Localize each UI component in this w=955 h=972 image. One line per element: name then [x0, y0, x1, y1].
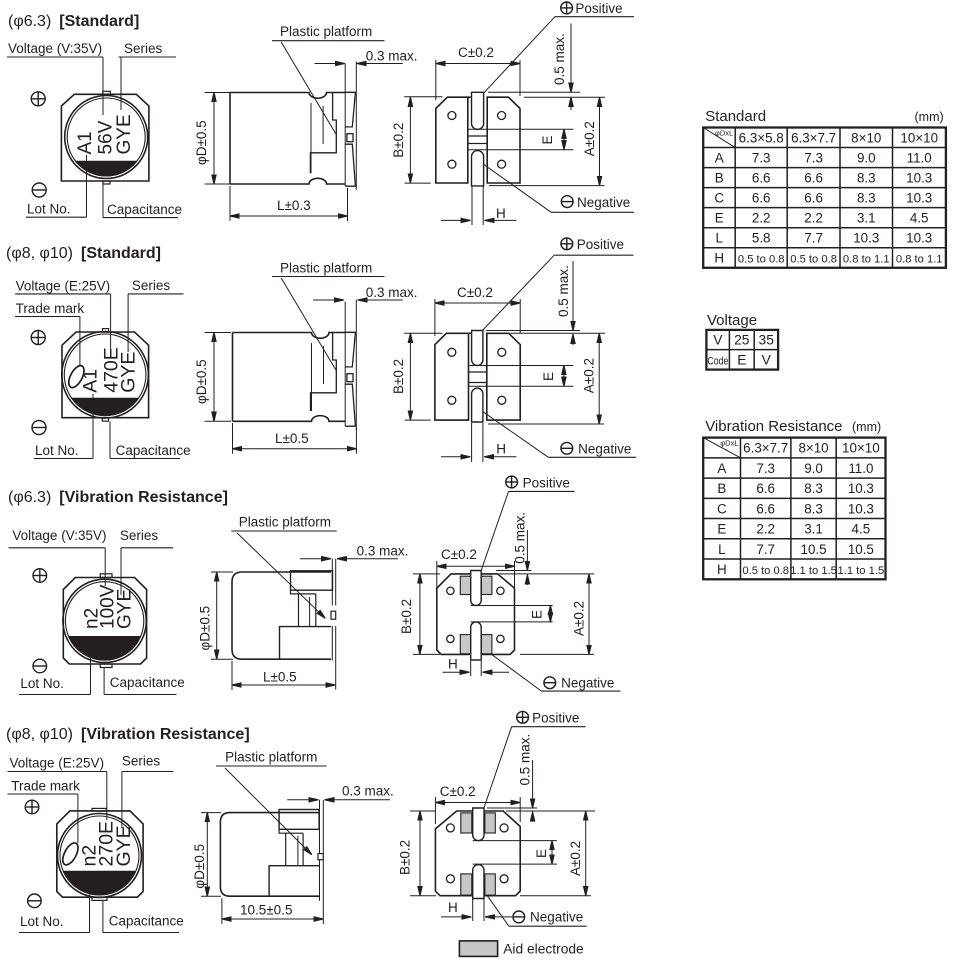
svg-text:0.5 max.: 0.5 max.: [556, 265, 571, 317]
svg-text:B±0.2: B±0.2: [399, 599, 414, 634]
svg-text:6.3×7.7: 6.3×7.7: [743, 441, 788, 456]
svg-text:L±0.3: L±0.3: [277, 198, 311, 213]
svg-text:φDxL: φDxL: [715, 129, 733, 138]
svg-text:2.2: 2.2: [804, 211, 823, 226]
svg-text:E: E: [534, 849, 549, 858]
svg-text:(mm): (mm): [915, 110, 944, 124]
svg-text:B: B: [717, 481, 726, 496]
svg-text:L: L: [718, 542, 725, 557]
svg-text:Series: Series: [120, 528, 159, 543]
svg-text:E: E: [737, 352, 746, 367]
svg-text:0.8 to 1.1: 0.8 to 1.1: [896, 254, 943, 266]
svg-text:Lot No.: Lot No.: [20, 914, 64, 929]
svg-text:0.5 max.: 0.5 max.: [513, 512, 528, 564]
svg-text:Lot No.: Lot No.: [35, 443, 79, 458]
svg-text:B±0.2: B±0.2: [391, 123, 406, 158]
svg-text:1.1 to 1.5: 1.1 to 1.5: [790, 565, 837, 577]
svg-text:H: H: [717, 562, 727, 577]
svg-text:E: E: [530, 610, 545, 619]
svg-text:Voltage (E:25V): Voltage (E:25V): [10, 756, 105, 771]
svg-text:(mm): (mm): [852, 420, 881, 434]
svg-text:A1: A1: [80, 369, 102, 393]
svg-text:25: 25: [734, 333, 750, 348]
svg-text:H: H: [496, 442, 506, 457]
svg-text:E: E: [715, 211, 724, 226]
svg-text:6.6: 6.6: [804, 191, 823, 206]
svg-text:Plastic platform: Plastic platform: [225, 750, 317, 765]
svg-text:10.5: 10.5: [801, 542, 827, 557]
svg-text:Positive: Positive: [577, 237, 624, 252]
svg-text:8.3: 8.3: [857, 191, 876, 206]
svg-text:0.5 max.: 0.5 max.: [552, 33, 567, 85]
svg-text:8.3: 8.3: [857, 171, 876, 186]
svg-text:GYE: GYE: [114, 589, 135, 629]
svg-text:10.3: 10.3: [906, 171, 932, 186]
svg-text:0.3 max.: 0.3 max.: [366, 285, 418, 300]
svg-text:2.2: 2.2: [752, 211, 771, 226]
svg-text:A±0.2: A±0.2: [568, 841, 583, 876]
svg-text:0.3 max.: 0.3 max.: [357, 544, 409, 559]
svg-text:8.3: 8.3: [804, 481, 823, 496]
svg-text:L±0.5: L±0.5: [263, 670, 297, 685]
svg-text:3.1: 3.1: [804, 522, 823, 537]
svg-text:0.5 to 0.8: 0.5 to 0.8: [738, 254, 785, 266]
svg-text:10.3: 10.3: [848, 501, 874, 516]
svg-text:Negative: Negative: [561, 676, 614, 691]
svg-text:C: C: [717, 501, 727, 516]
svg-text:Capacitance: Capacitance: [110, 675, 185, 690]
svg-text:8×10: 8×10: [851, 130, 881, 145]
svg-text:Trade mark: Trade mark: [16, 301, 85, 316]
svg-text:11.0: 11.0: [907, 150, 932, 165]
svg-text:Positive: Positive: [523, 475, 570, 490]
svg-text:Plastic platform: Plastic platform: [280, 261, 372, 276]
svg-text:φDxL: φDxL: [720, 439, 738, 448]
svg-text:7.7: 7.7: [756, 542, 775, 557]
svg-text:GYE: GYE: [118, 352, 140, 393]
svg-text:2.2: 2.2: [756, 522, 775, 537]
svg-text:Trade mark: Trade mark: [11, 779, 80, 794]
svg-text:10×10: 10×10: [842, 441, 880, 456]
svg-text:10.3: 10.3: [853, 231, 879, 246]
svg-text:(φ6.3) [Vibration Resistance]: (φ6.3) [Vibration Resistance]: [8, 489, 228, 506]
svg-text:35: 35: [759, 333, 775, 348]
svg-text:11.0: 11.0: [848, 461, 873, 476]
svg-text:C±0.2: C±0.2: [440, 784, 476, 799]
svg-text:10×10: 10×10: [900, 130, 938, 145]
svg-text:6.6: 6.6: [804, 171, 823, 186]
svg-text:6.6: 6.6: [752, 171, 771, 186]
svg-text:8.3: 8.3: [804, 501, 823, 516]
svg-text:Standard: Standard: [705, 108, 766, 125]
svg-text:B±0.2: B±0.2: [398, 840, 413, 875]
svg-text:φD±0.5: φD±0.5: [192, 844, 207, 889]
svg-text:6.3×7.7: 6.3×7.7: [791, 130, 836, 145]
svg-text:10.3: 10.3: [906, 231, 932, 246]
svg-text:10.3: 10.3: [906, 191, 932, 206]
svg-text:0.5 to 0.8: 0.5 to 0.8: [742, 565, 789, 577]
svg-text:Negative: Negative: [578, 442, 631, 457]
svg-text:A±0.2: A±0.2: [572, 601, 587, 636]
svg-text:H: H: [448, 657, 458, 672]
svg-text:A: A: [715, 150, 724, 165]
svg-text:A±0.2: A±0.2: [582, 121, 597, 156]
svg-text:6.3×5.8: 6.3×5.8: [739, 130, 784, 145]
svg-text:10.5: 10.5: [848, 542, 874, 557]
svg-text:C: C: [714, 191, 724, 206]
svg-text:C±0.2: C±0.2: [457, 285, 493, 300]
svg-text:Series: Series: [122, 754, 161, 769]
svg-text:0.5 max.: 0.5 max.: [518, 734, 533, 786]
svg-text:Voltage: Voltage: [707, 312, 757, 329]
svg-text:L: L: [715, 231, 722, 246]
svg-text:E: E: [717, 522, 726, 537]
svg-text:7.3: 7.3: [752, 150, 771, 165]
svg-text:(φ8, φ10) [Vibration Resistanc: (φ8, φ10) [Vibration Resistance]: [6, 726, 250, 743]
svg-text:Plastic platform: Plastic platform: [280, 24, 372, 39]
svg-text:Negative: Negative: [577, 195, 630, 210]
svg-text:Positive: Positive: [532, 711, 579, 726]
svg-text:H: H: [496, 206, 506, 221]
svg-text:10.5±0.5: 10.5±0.5: [240, 903, 292, 918]
svg-text:V: V: [762, 352, 772, 367]
svg-text:A±0.2: A±0.2: [582, 358, 597, 393]
svg-text:(φ8, φ10) [Standard]: (φ8, φ10) [Standard]: [6, 245, 161, 262]
svg-text:0.3 max.: 0.3 max.: [342, 784, 394, 799]
svg-text:(φ6.3) [Standard]: (φ6.3) [Standard]: [8, 13, 139, 30]
svg-text:3.1: 3.1: [857, 211, 876, 226]
svg-text:7.3: 7.3: [804, 150, 823, 165]
svg-text:φD±0.5: φD±0.5: [194, 359, 209, 404]
svg-text:Lot No.: Lot No.: [20, 676, 64, 691]
svg-text:Capacitance: Capacitance: [109, 914, 184, 929]
svg-text:6.6: 6.6: [756, 501, 775, 516]
svg-text:Voltage (V:35V): Voltage (V:35V): [8, 41, 102, 56]
svg-text:E: E: [541, 372, 556, 381]
svg-text:C±0.2: C±0.2: [441, 547, 477, 562]
svg-text:5.8: 5.8: [752, 231, 771, 246]
svg-text:6.6: 6.6: [752, 191, 771, 206]
svg-text:A1: A1: [75, 131, 96, 154]
svg-text:0.3 max.: 0.3 max.: [366, 49, 418, 64]
svg-text:7.3: 7.3: [756, 461, 775, 476]
svg-text:0.5 to 0.8: 0.5 to 0.8: [790, 254, 837, 266]
svg-text:4.5: 4.5: [852, 522, 871, 537]
svg-text:7.7: 7.7: [804, 231, 823, 246]
svg-text:9.0: 9.0: [857, 150, 876, 165]
svg-text:Series: Series: [132, 278, 171, 293]
svg-text:GYE: GYE: [113, 825, 135, 866]
svg-text:V: V: [713, 333, 723, 348]
svg-text:4.5: 4.5: [910, 211, 929, 226]
svg-text:8×10: 8×10: [798, 441, 828, 456]
svg-text:Positive: Positive: [575, 1, 622, 16]
svg-text:6.6: 6.6: [756, 481, 775, 496]
svg-text:H: H: [448, 900, 458, 915]
svg-text:Capacitance: Capacitance: [116, 443, 191, 458]
svg-text:B: B: [715, 171, 724, 186]
svg-text:GYE: GYE: [114, 114, 135, 154]
svg-text:10.3: 10.3: [848, 481, 874, 496]
svg-text:Code: Code: [707, 355, 728, 367]
svg-text:B±0.2: B±0.2: [391, 359, 406, 394]
svg-text:L±0.5: L±0.5: [275, 431, 309, 446]
svg-text:0.8 to 1.1: 0.8 to 1.1: [843, 254, 890, 266]
svg-text:φD±0.5: φD±0.5: [198, 606, 213, 651]
svg-text:Vibration Resistance: Vibration Resistance: [705, 418, 842, 435]
svg-text:1.1 to 1.5: 1.1 to 1.5: [838, 565, 885, 577]
svg-text:Capacitance: Capacitance: [107, 202, 182, 217]
svg-text:A: A: [717, 461, 726, 476]
svg-text:Voltage (E:25V): Voltage (E:25V): [16, 279, 111, 294]
svg-text:Series: Series: [124, 41, 163, 56]
svg-text:Aid electrode: Aid electrode: [503, 942, 584, 957]
svg-text:9.0: 9.0: [804, 461, 823, 476]
svg-text:C±0.2: C±0.2: [458, 45, 494, 60]
svg-text:Plastic platform: Plastic platform: [239, 515, 331, 530]
svg-text:Negative: Negative: [530, 910, 583, 925]
svg-text:φD±0.5: φD±0.5: [194, 120, 209, 165]
svg-text:E: E: [540, 135, 555, 144]
svg-text:Lot No.: Lot No.: [27, 202, 71, 217]
svg-text:H: H: [714, 251, 724, 266]
svg-text:Voltage (V:35V): Voltage (V:35V): [12, 528, 106, 543]
